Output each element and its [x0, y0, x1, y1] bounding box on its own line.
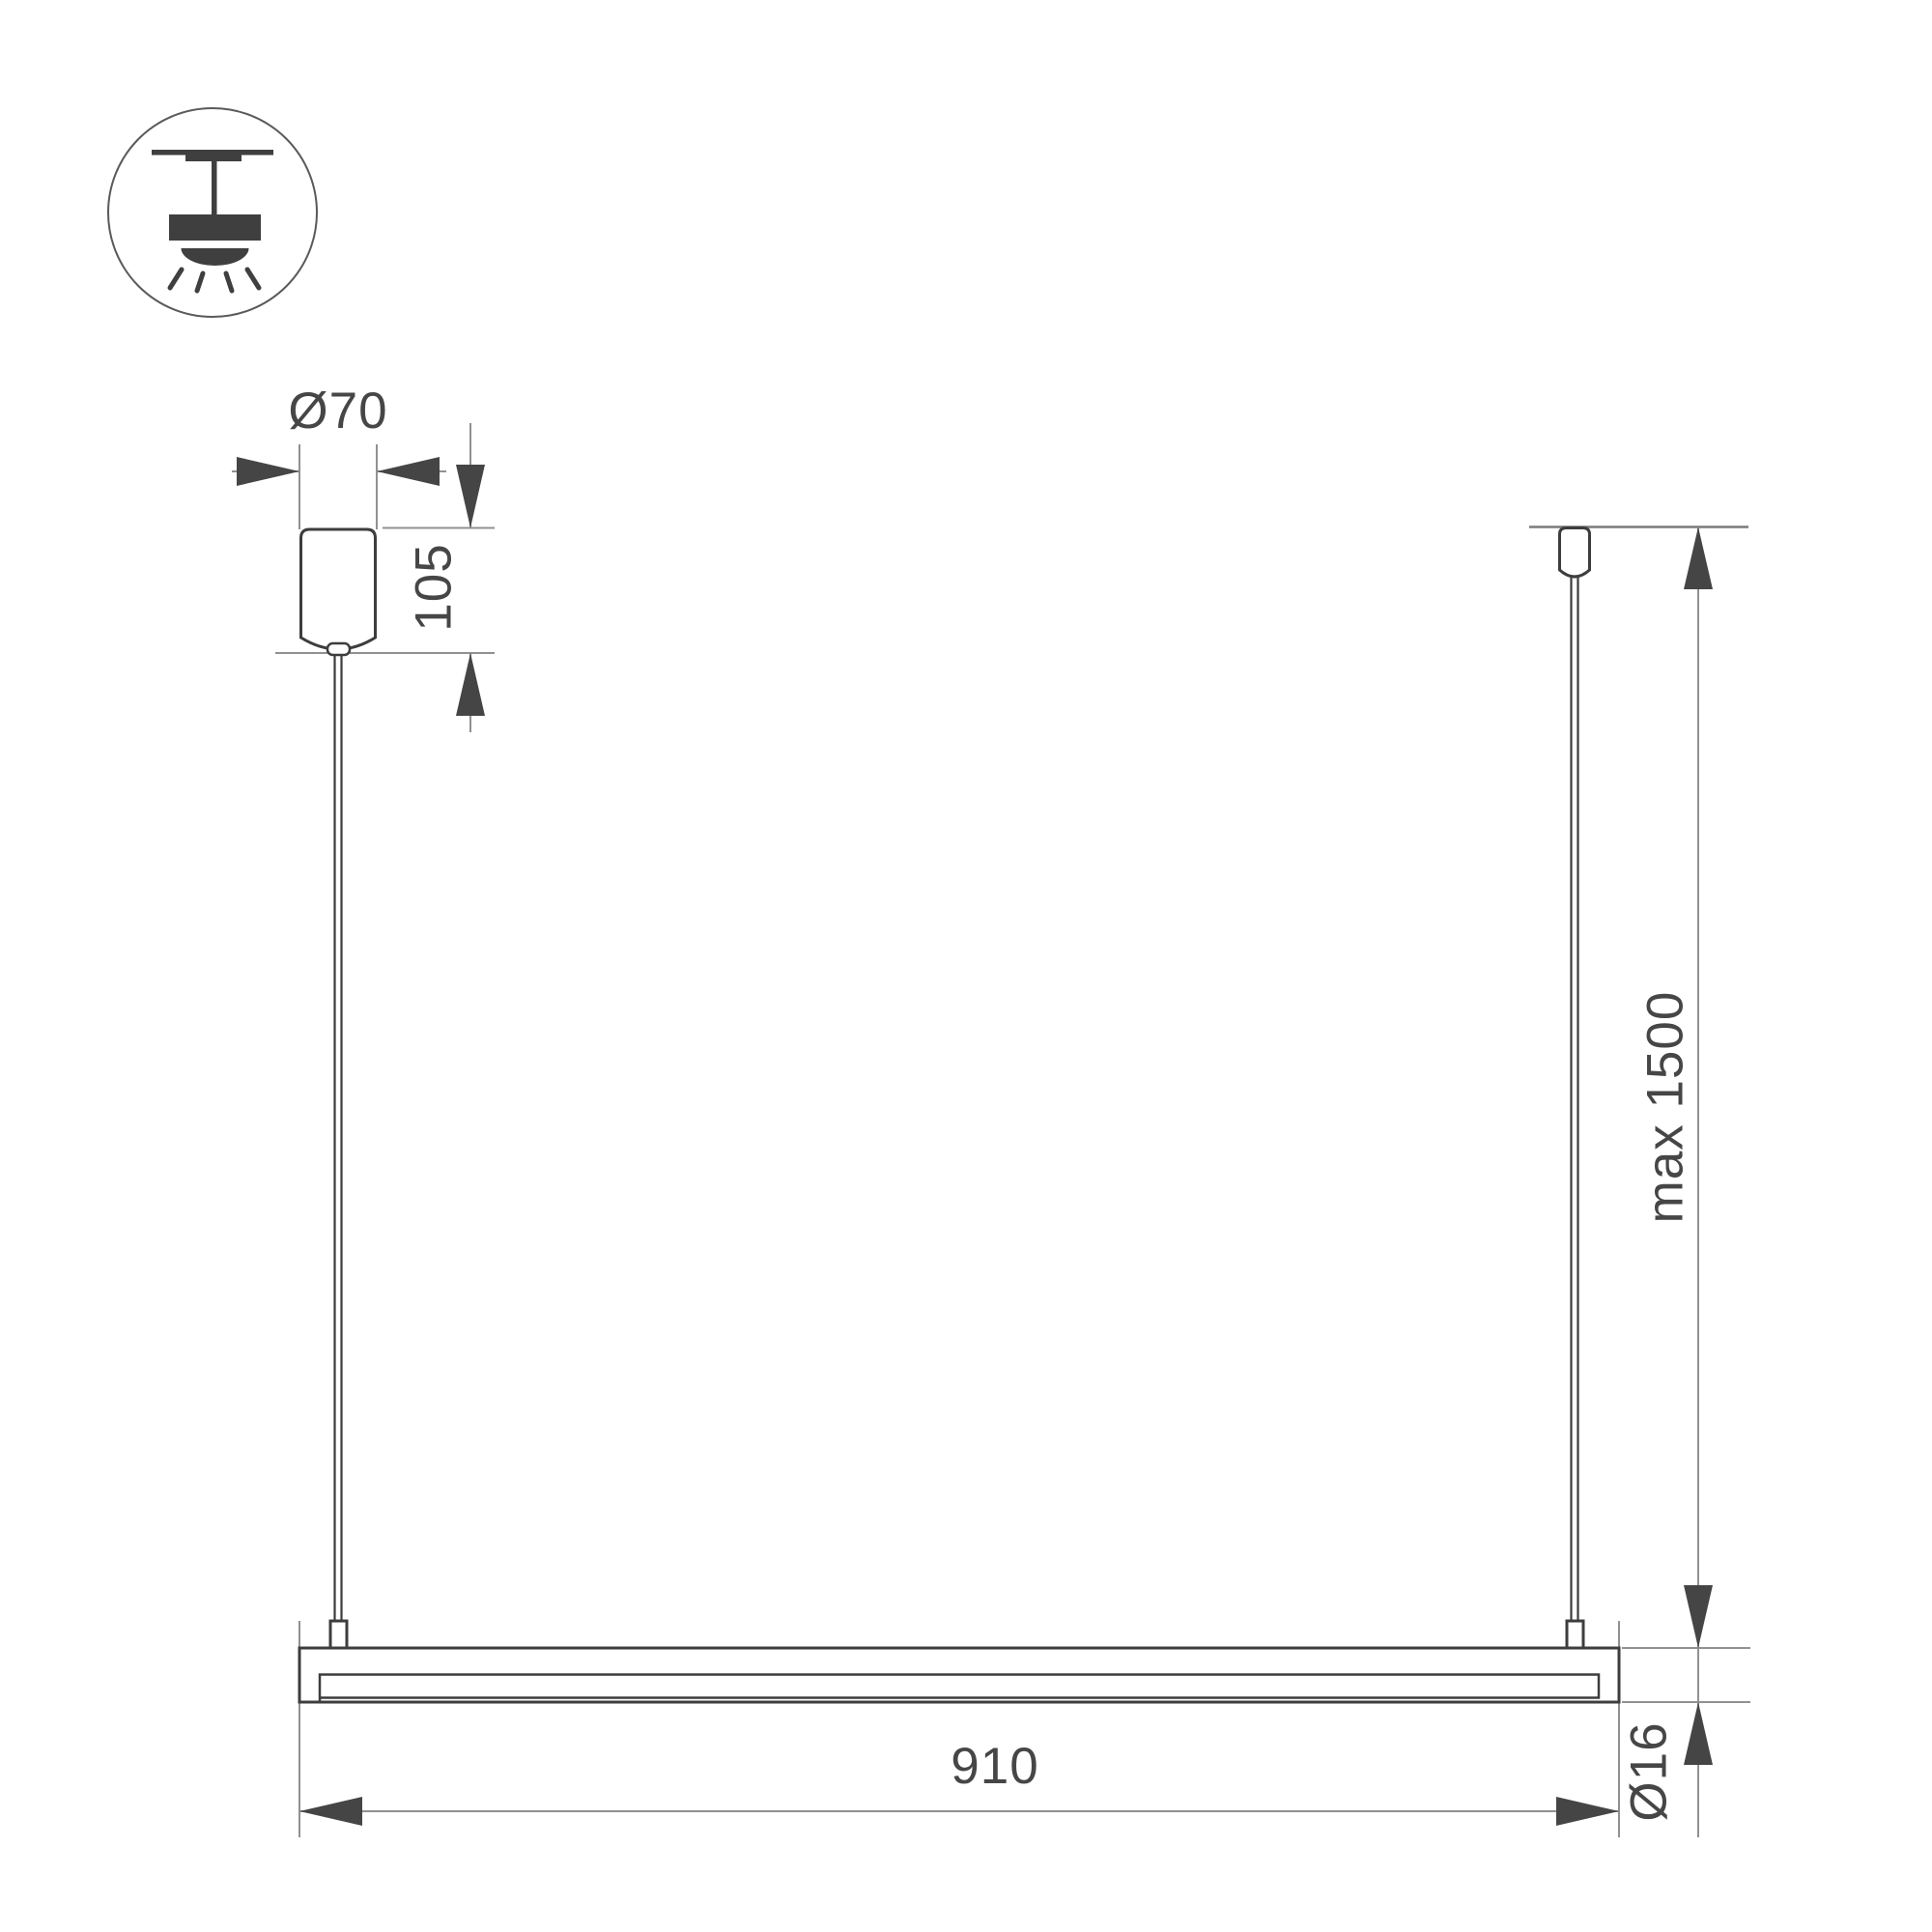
arrow-left-icon [377, 457, 440, 486]
wire-holder [1560, 528, 1590, 578]
arrow-up-icon [456, 653, 485, 716]
bar-length-label: 910 [951, 1738, 1038, 1795]
dimension-labels: Ø70 105 max 1500 910 Ø16 [288, 383, 1693, 1822]
luminaire-drawing [299, 528, 1619, 1703]
icon-suspension-rod [212, 161, 217, 215]
icon-ceiling-line [152, 150, 273, 156]
canopy-body [301, 529, 376, 649]
dimension-lines [232, 423, 1750, 1837]
icon-lamp-body [169, 214, 261, 241]
arrow-down-icon [1684, 1585, 1713, 1648]
suspension-height-label: max 1500 [1637, 991, 1694, 1224]
icon-light-ray [197, 273, 203, 291]
canopy-diameter-label: Ø70 [288, 383, 387, 440]
left-wire-gripper [330, 1621, 347, 1649]
right-wire-gripper [1567, 1621, 1583, 1649]
arrow-right-icon [237, 457, 299, 486]
arrow-down-icon [456, 465, 485, 528]
ceiling-canopy [301, 529, 376, 655]
wire-holder-body [1560, 528, 1590, 578]
arrow-right-icon [1556, 1797, 1619, 1826]
right-suspension-wire [1572, 577, 1578, 1633]
canopy-height-label: 105 [406, 543, 463, 631]
dimension-drawing: Ø70 105 max 1500 910 Ø16 [0, 0, 1932, 1932]
icon-light-ray [170, 270, 182, 288]
pendant-light-icon [108, 108, 317, 317]
bar-diameter-label: Ø16 [1621, 1721, 1678, 1821]
canopy-cable-gland [327, 643, 350, 655]
icon-light-ray [226, 273, 232, 291]
icon-lamp-dome [182, 248, 249, 266]
icon-canopy-mount [185, 156, 241, 162]
technical-drawing-page: Ø70 105 max 1500 910 Ø16 [0, 0, 1932, 1932]
left-suspension-wire [335, 653, 342, 1633]
arrow-up-icon [1684, 1702, 1713, 1765]
icon-light-ray [247, 270, 259, 288]
lamp-bar [299, 1648, 1619, 1702]
dimension-arrows [237, 457, 1713, 1826]
arrow-up-icon [1684, 527, 1713, 590]
arrow-left-icon [299, 1797, 362, 1826]
